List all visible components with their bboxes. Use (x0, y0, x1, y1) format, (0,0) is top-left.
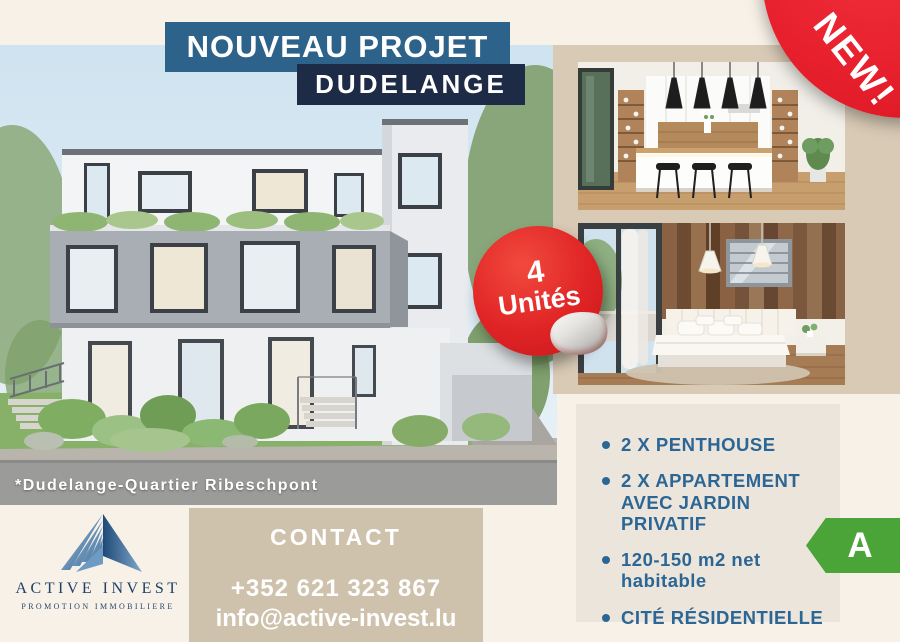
photo-caption: *Dudelange-Quartier Ribeschpont (15, 477, 318, 495)
bedroom-illustration (578, 223, 845, 385)
contact-phone: +352 621 323 867 (189, 575, 483, 603)
feature-text: 2 X PENTHOUSE (621, 434, 776, 455)
contact-heading: CONTACT (189, 524, 483, 551)
contact-email: info@active-invest.lu (189, 605, 483, 633)
title-line1: NOUVEAU PROJET (187, 29, 489, 65)
bullet-dot-icon (602, 556, 610, 564)
company-logo: ACTIVE INVEST PROMOTION IMMOBILIERE (12, 512, 184, 611)
bullet-dot-icon (602, 614, 610, 622)
logo-tagline: PROMOTION IMMOBILIERE (12, 602, 184, 611)
units-count-sticker: 4 Unités (473, 226, 603, 356)
units-number: 4 (525, 255, 546, 288)
contact-panel: CONTACT +352 621 323 867 info@active-inv… (189, 508, 483, 642)
bedroom-photo (578, 223, 845, 385)
units-word: Unités (497, 281, 583, 322)
feature-item: 2 X PENTHOUSE (602, 434, 830, 455)
kitchen-illustration (578, 62, 845, 210)
features-panel: 2 X PENTHOUSE 2 X APPARTEMENT AVEC JARDI… (576, 404, 840, 622)
logo-name: ACTIVE INVEST (12, 580, 184, 598)
energy-class-letter: A (847, 526, 872, 566)
feature-item: 120-150 m2 net habitable (602, 549, 830, 592)
feature-text: CITÉ RÉSIDENTIELLE (621, 607, 823, 628)
bullet-dot-icon (602, 477, 610, 485)
feature-text: 2 X APPARTEMENT AVEC JARDIN PRIVATIF (621, 470, 830, 534)
energy-class-badge: A (806, 518, 900, 573)
active-invest-logo-icon (46, 512, 150, 576)
title-line2: DUDELANGE (315, 69, 507, 100)
feature-item: CITÉ RÉSIDENTIELLE (602, 607, 830, 628)
features-list: 2 X PENTHOUSE 2 X APPARTEMENT AVEC JARDI… (602, 434, 830, 628)
feature-item: 2 X APPARTEMENT AVEC JARDIN PRIVATIF (602, 470, 830, 534)
flyer: *Dudelange-Quartier Ribeschpont (0, 0, 900, 642)
feature-text: 120-150 m2 net habitable (621, 549, 830, 592)
sticker-text: 4 Unités (465, 218, 612, 365)
title-banner-dudelange: DUDELANGE (297, 64, 525, 105)
kitchen-photo (578, 62, 845, 210)
bullet-dot-icon (602, 441, 610, 449)
